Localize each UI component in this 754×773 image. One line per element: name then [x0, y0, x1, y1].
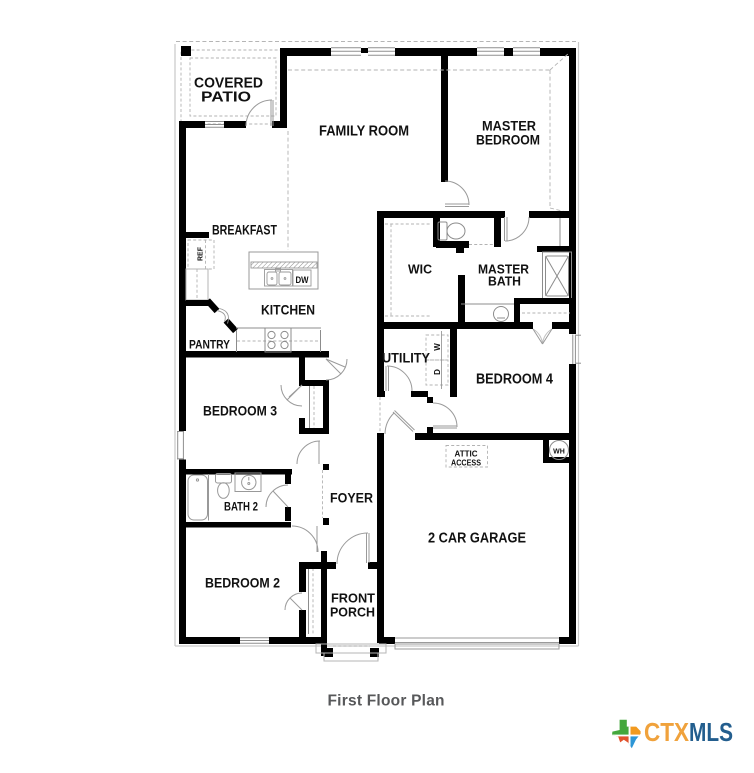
svg-text:D: D	[433, 369, 442, 375]
svg-text:BEDROOM 3: BEDROOM 3	[203, 403, 277, 419]
svg-text:BEDROOM 2: BEDROOM 2	[205, 575, 280, 591]
svg-text:W: W	[433, 343, 442, 351]
svg-text:BEDROOM: BEDROOM	[476, 133, 540, 148]
svg-text:WIC: WIC	[408, 262, 433, 277]
svg-text:PATIO: PATIO	[201, 90, 251, 106]
svg-text:WH: WH	[553, 449, 565, 456]
svg-text:2 CAR GARAGE: 2 CAR GARAGE	[428, 531, 526, 547]
svg-text:BEDROOM 4: BEDROOM 4	[476, 372, 553, 388]
svg-text:PANTRY: PANTRY	[189, 340, 230, 352]
svg-text:MLS: MLS	[689, 717, 733, 747]
svg-text:BREAKFAST: BREAKFAST	[212, 222, 277, 238]
svg-text:UTILITY: UTILITY	[382, 351, 430, 366]
svg-text:KITCHEN: KITCHEN	[261, 302, 315, 318]
svg-text:ACCESS: ACCESS	[451, 458, 481, 468]
svg-text:BATH: BATH	[488, 274, 521, 289]
svg-text:CTX: CTX	[644, 717, 690, 747]
svg-text:MASTER: MASTER	[482, 119, 536, 134]
svg-text:FRONT: FRONT	[331, 591, 375, 606]
svg-text:First Floor Plan: First Floor Plan	[328, 693, 445, 710]
svg-text:PORCH: PORCH	[330, 605, 375, 620]
svg-text:DW: DW	[296, 275, 309, 285]
svg-text:FOYER: FOYER	[330, 491, 373, 506]
svg-text:FAMILY ROOM: FAMILY ROOM	[319, 123, 409, 140]
svg-text:REF: REF	[198, 246, 205, 261]
svg-text:BATH 2: BATH 2	[224, 500, 258, 514]
